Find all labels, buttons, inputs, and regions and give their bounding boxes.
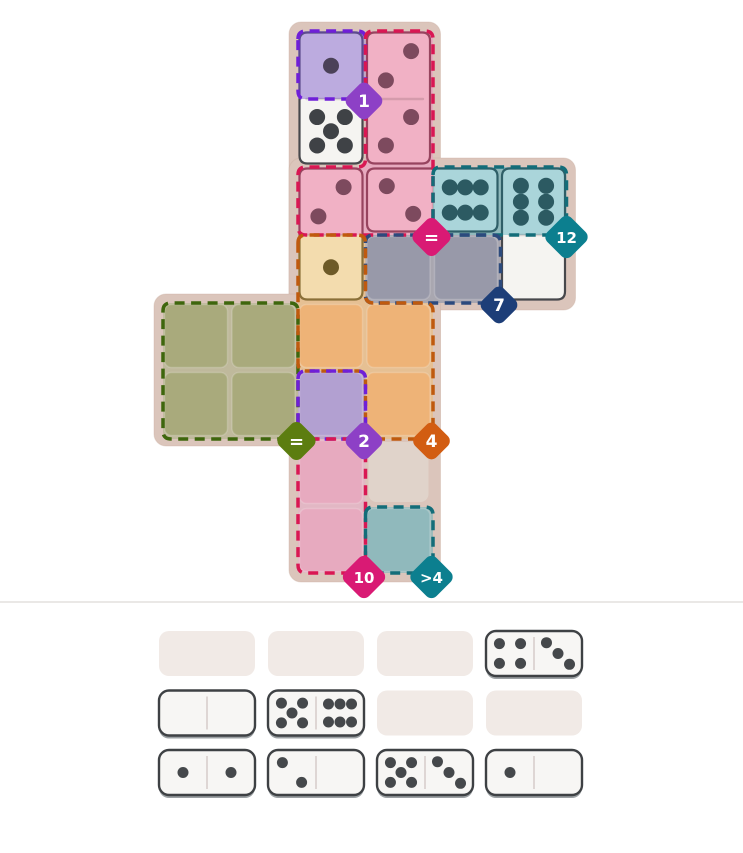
pip [515,658,526,669]
region-cell[interactable] [367,373,430,436]
pip [538,210,554,226]
pip [494,658,505,669]
pip [297,717,308,728]
tray-domino-4-3[interactable] [486,631,582,679]
pip [505,767,516,778]
tray-slot-empty [377,631,473,676]
pip [379,178,395,194]
tray-domino-2-0[interactable] [268,750,364,798]
pip [396,767,407,778]
pip [309,137,325,153]
pip [455,778,466,789]
pip [335,717,346,728]
region-cell[interactable] [300,373,363,436]
pip [346,699,357,710]
pip [378,137,394,153]
badge-text: 10 [354,569,375,587]
pip [513,194,529,210]
pip [276,717,287,728]
pip [276,698,287,709]
pip [457,205,473,221]
pip [403,43,419,59]
region-cell[interactable] [300,305,363,368]
pip [406,777,417,788]
tray-domino-5-3[interactable] [377,750,473,798]
tray-domino-5-6[interactable] [268,691,364,739]
pip [335,699,346,710]
pip [457,179,473,195]
region-cell[interactable] [367,305,430,368]
pip [310,208,326,224]
domino-half [300,169,363,236]
region-cell[interactable] [165,305,228,368]
pip [442,205,458,221]
pip [538,194,554,210]
badge-text: 2 [358,432,370,452]
badge-text: 7 [493,296,505,316]
tray-domino-0-0[interactable] [159,691,255,739]
tray-slot-empty [486,691,582,736]
pip [405,206,421,222]
pip [323,58,339,74]
tray-slot-empty [377,691,473,736]
pip [444,767,455,778]
pip [473,205,489,221]
pip [277,757,288,768]
region-cell[interactable] [232,373,295,436]
pip [385,757,396,768]
badge-text: = [424,228,439,249]
pip [337,109,353,125]
pip [309,109,325,125]
pip [323,259,339,275]
domino-half [367,33,430,100]
tray-domino-1-0[interactable] [486,750,582,798]
pip [178,767,189,778]
pip [287,708,298,719]
region-magenta-10 [298,439,366,573]
tray-domino-1-1[interactable] [159,750,255,798]
pip [473,179,489,195]
pip [403,109,419,125]
pip [337,137,353,153]
pip [515,638,526,649]
region-cell[interactable] [367,509,430,572]
region-cell[interactable] [300,509,363,572]
badge-text: 1 [358,92,370,112]
domino-half [367,169,433,232]
game-canvas: 1=127=4210>4 [0,0,743,853]
board-cell-empty[interactable] [369,442,429,502]
pip [541,637,552,648]
pip [378,72,394,88]
tray-slot-empty [159,631,255,676]
pip [226,767,237,778]
pip [564,659,575,670]
pip [432,756,443,767]
region-cell[interactable] [232,305,295,368]
pip [494,638,505,649]
pip [513,178,529,194]
pip [323,123,339,139]
pip [553,648,564,659]
pip [406,757,417,768]
pip [296,777,307,788]
pip [442,179,458,195]
pip [336,179,352,195]
badge-text: 4 [426,432,438,452]
tray-slot-empty [268,631,364,676]
badge-text: = [289,432,304,453]
pip [538,178,554,194]
pip [385,777,396,788]
domino-half [433,169,498,232]
badge-text: 12 [556,229,577,247]
region-green-equal [163,303,298,439]
pip [513,210,529,226]
pip [297,698,308,709]
domino-puzzle-page: 1=127=4210>4 [0,0,743,853]
region-cell[interactable] [165,373,228,436]
pip [346,717,357,728]
badge-text: >4 [420,569,443,587]
pip [323,699,334,710]
pip [323,717,334,728]
